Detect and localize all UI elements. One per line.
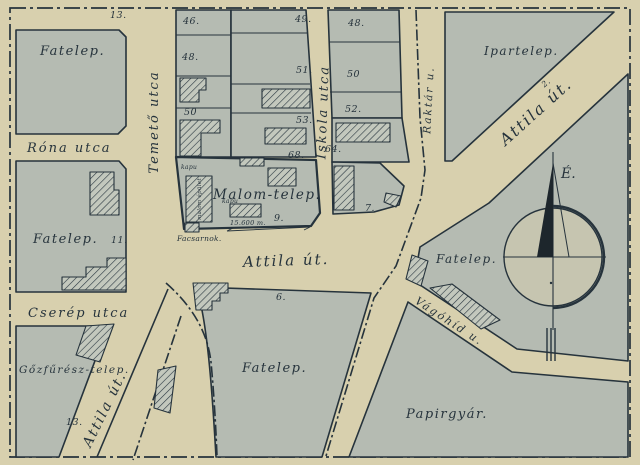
site-label-papirgyar: Papirgyár. bbox=[405, 407, 488, 422]
building bbox=[154, 366, 176, 413]
parcel-number-48-east: 48. bbox=[347, 18, 365, 29]
building bbox=[240, 158, 264, 166]
parcel-number-13-sw: 13. bbox=[66, 417, 83, 428]
parcel-number-53: 53. bbox=[296, 115, 313, 126]
parcel-number-64: 64. bbox=[325, 144, 342, 155]
site-label-gozfuresz-telep: Gőzfűrész-telep. bbox=[19, 363, 130, 376]
street-label-cserep-utca: Cserép utca bbox=[28, 306, 129, 321]
building bbox=[334, 166, 354, 210]
map-page: É. Temető utca Iskola utca Raktár u. Rón… bbox=[0, 0, 640, 465]
street-label-rona-utca: Róna utca bbox=[26, 141, 112, 156]
site-label-fatelep-east: Fatelep. bbox=[435, 252, 497, 266]
legend-label-facsarnok: Facsarnok. bbox=[176, 234, 222, 243]
site-label-fatelep-nw: Fatelep. bbox=[39, 44, 105, 59]
parcel-number-52: 52. bbox=[345, 104, 362, 115]
street-label-raktar-u: Raktár u. bbox=[421, 66, 437, 135]
building bbox=[230, 204, 261, 217]
annotation-kapu-mid: kapu bbox=[222, 198, 238, 205]
parcel-number-13-nw: 13. bbox=[110, 10, 127, 21]
street-label-temeto-utca: Temető utca bbox=[147, 70, 162, 173]
parcel-number-48-west: 48. bbox=[181, 52, 199, 63]
annotation-dimension: 15.600 m. bbox=[230, 219, 266, 227]
site-label-fatelep-west: Fatelep. bbox=[32, 232, 98, 247]
parcel-number-49: 49. bbox=[294, 14, 312, 25]
parcel-number-68: 68. bbox=[288, 150, 305, 161]
map-canvas: É. Temető utca Iskola utca Raktár u. Rón… bbox=[0, 0, 640, 465]
building bbox=[336, 123, 390, 142]
compass-center-dot bbox=[550, 282, 552, 284]
annotation-kapu-top: kapu bbox=[181, 164, 197, 171]
parcel-number-6: 6. bbox=[276, 292, 286, 303]
site-label-fatelep-south: Fatelep. bbox=[241, 361, 307, 376]
parcel-number-11: 11. bbox=[111, 235, 128, 246]
building bbox=[262, 89, 310, 108]
building bbox=[265, 128, 306, 144]
street-label-attila-ut-center: Attila út. bbox=[241, 250, 330, 271]
parcel-number-50-east: 50 bbox=[347, 69, 360, 80]
compass-north-label: É. bbox=[560, 164, 576, 182]
parcel-number-7: 7. bbox=[365, 203, 375, 214]
block-column-c bbox=[328, 10, 402, 118]
site-label-ipartelep: Ipartelep. bbox=[483, 44, 559, 58]
parcel-number-9: 9. bbox=[274, 213, 284, 224]
parcel-number-46: 46. bbox=[182, 16, 200, 27]
building bbox=[268, 168, 296, 186]
annotation-mill-building: malom épület bbox=[196, 178, 203, 220]
parcel-number-50-west: 50 bbox=[184, 107, 197, 118]
parcel-number-51: 51. bbox=[296, 65, 313, 76]
legend-hatch-swatch bbox=[185, 223, 199, 232]
